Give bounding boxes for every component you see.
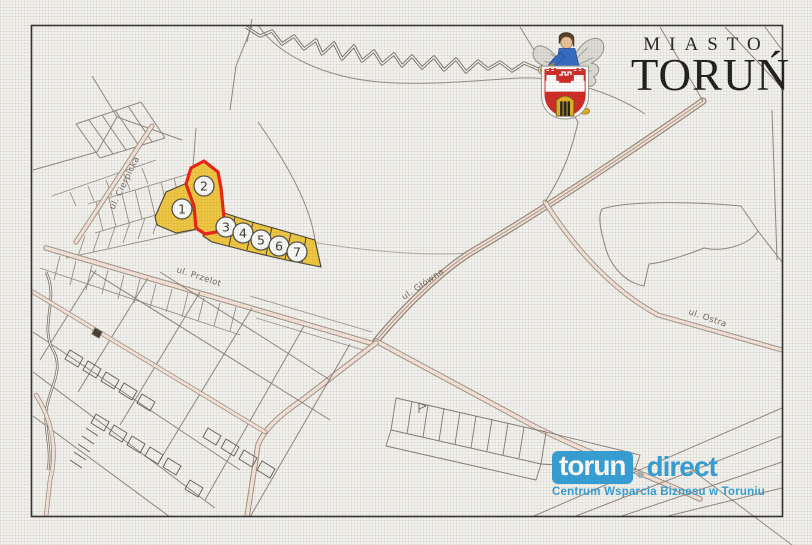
- parcel-number-5: 5: [257, 233, 265, 248]
- map-poster: 1 2 3 4 5 6 7 ul. Cierpicka ul. Przelot …: [0, 0, 812, 545]
- parcel-number-3: 3: [222, 220, 230, 235]
- parcel-number-4: 4: [239, 226, 247, 241]
- map-town-grid-sw: [33, 270, 350, 517]
- city-name: TORUŃ: [610, 53, 790, 98]
- parcel-number-1: 1: [178, 202, 186, 217]
- road-glowna: [376, 101, 703, 341]
- parcel-number-6: 6: [275, 239, 283, 254]
- torun-coat-of-arms-icon: [528, 24, 608, 122]
- logo-tagline: Centrum Wsparcia Biznesu w Toruniu: [552, 486, 765, 498]
- street-label-glowna: ul. Główna: [400, 266, 447, 302]
- torun-direct-logo: torun direct Centrum Wsparcia Biznesu w …: [552, 451, 765, 498]
- logo-torun-box: torun: [552, 451, 633, 484]
- road-ostra: [545, 202, 782, 350]
- city-brand-header: MIASTO TORUŃ: [526, 20, 792, 122]
- map-stream-top: [246, 27, 552, 72]
- logo-row: torun direct: [552, 451, 765, 484]
- logo-dot-icon: [637, 471, 644, 478]
- logo-direct-text: direct: [647, 451, 717, 484]
- parcel-number-2: 2: [200, 179, 208, 194]
- map-houses: [65, 328, 275, 497]
- parcel-number-7: 7: [293, 245, 301, 260]
- road-sw-diagonals: [33, 292, 265, 517]
- map-parcel-fan-nw: [33, 26, 252, 170]
